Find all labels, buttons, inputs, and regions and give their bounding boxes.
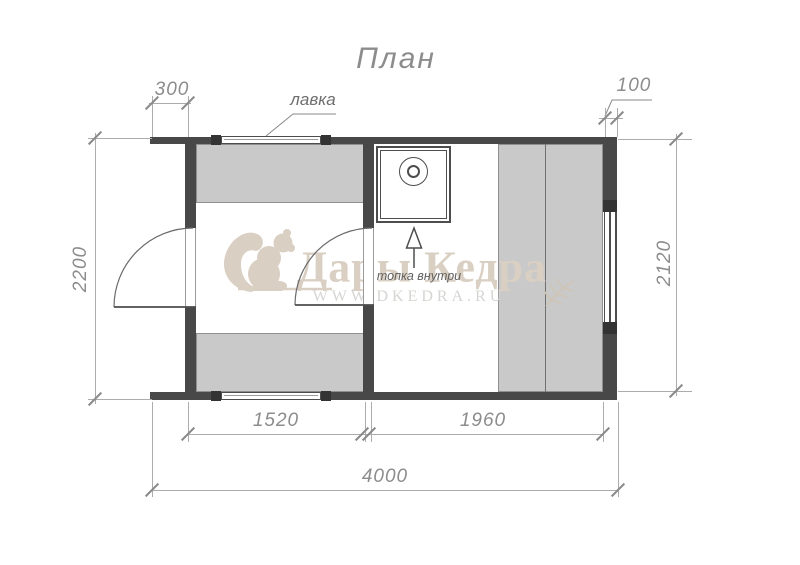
extension-line xyxy=(88,399,152,400)
up-arrow-icon xyxy=(407,228,422,268)
dim-100-leader xyxy=(605,100,652,116)
extension-line xyxy=(618,139,692,140)
extension-line xyxy=(618,402,619,497)
bench-label-leader xyxy=(266,114,336,136)
extension-line xyxy=(617,108,618,137)
extension-line xyxy=(152,402,153,497)
dim-1520: 1520 xyxy=(253,410,299,432)
dim-300: 300 xyxy=(155,79,190,101)
extension-line xyxy=(605,108,606,137)
dim-2200: 2200 xyxy=(70,246,92,292)
bench-label: лавка xyxy=(290,90,335,110)
dim-100: 100 xyxy=(617,75,652,97)
dim-4000: 4000 xyxy=(362,466,408,488)
dim-1960: 1960 xyxy=(460,410,506,432)
interior-door-arc xyxy=(295,228,372,305)
extension-line xyxy=(603,402,604,442)
dimension-line xyxy=(188,434,604,435)
page-title: План xyxy=(356,42,436,76)
extension-line xyxy=(88,138,152,139)
dimension-line xyxy=(152,490,619,491)
stove-note-label: топка внутри xyxy=(377,269,461,283)
dim-2120: 2120 xyxy=(654,240,676,286)
dimension-line xyxy=(95,133,96,404)
extension-line xyxy=(618,391,692,392)
extension-line xyxy=(188,402,189,442)
dimension-line xyxy=(676,134,677,396)
floor-plan-canvas: Дары Кедра WWW.DKEDRA.RU xyxy=(0,0,800,565)
extension-line xyxy=(371,402,372,442)
exterior-door-arc xyxy=(114,228,193,307)
